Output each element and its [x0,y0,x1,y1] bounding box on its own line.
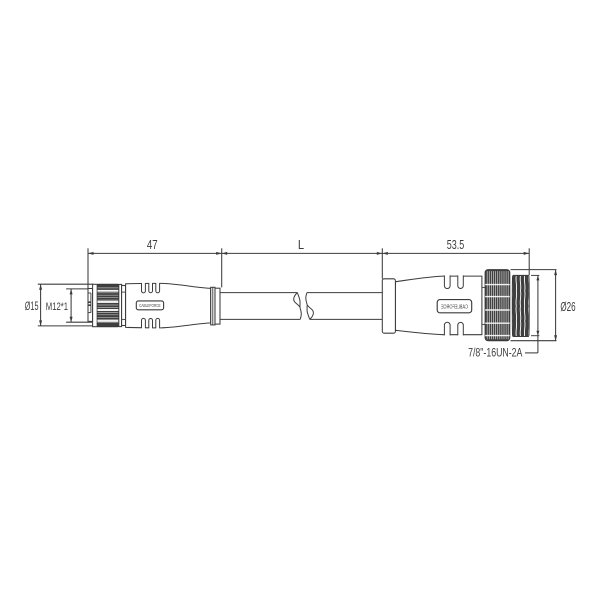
svg-text:L: L [298,238,304,252]
svg-text:CABLEFORCE: CABLEFORCE [139,303,161,308]
svg-text:CABLEFORCE: CABLEFORCE [441,305,468,311]
svg-text:Ø15: Ø15 [25,299,39,313]
svg-text:Ø26: Ø26 [560,299,575,314]
svg-text:53.5: 53.5 [447,238,465,252]
svg-text:M12*1: M12*1 [46,301,68,313]
svg-text:47: 47 [147,238,158,252]
svg-text:7/8"-16UN-2A: 7/8"-16UN-2A [468,345,523,359]
